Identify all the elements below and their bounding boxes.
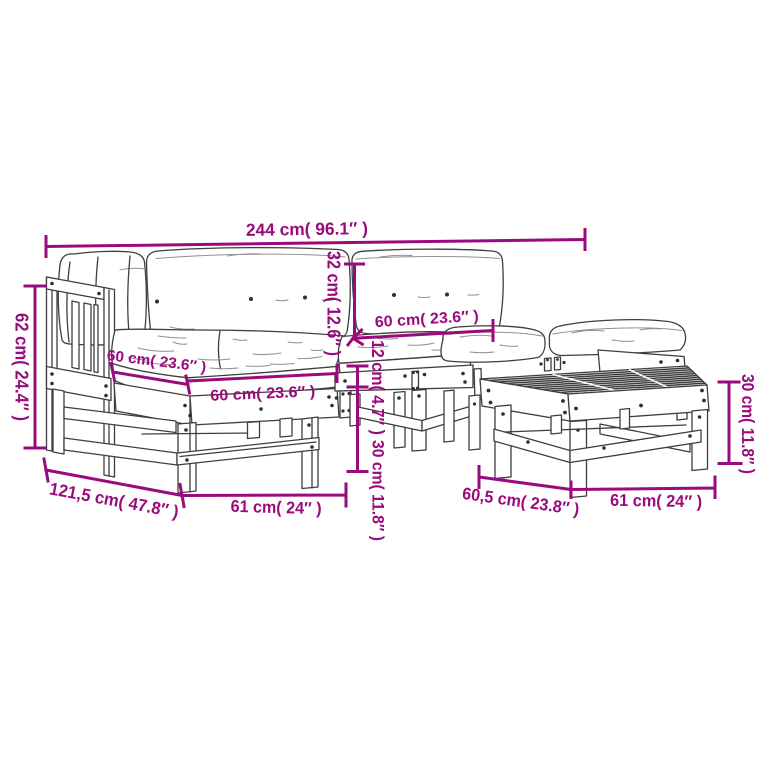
svg-text:61 cm( 24″ ): 61 cm( 24″ ) bbox=[230, 497, 321, 518]
svg-text:30 cm( 11.8″ ): 30 cm( 11.8″ ) bbox=[369, 440, 388, 541]
svg-text:30 cm( 11.8″ ): 30 cm( 11.8″ ) bbox=[738, 374, 758, 474]
svg-text:62 cm( 24.4″ ): 62 cm( 24.4″ ) bbox=[12, 313, 32, 421]
svg-text:61 cm( 24″ ): 61 cm( 24″ ) bbox=[610, 491, 702, 512]
svg-text:12 cm( 4.7″ ): 12 cm( 4.7″ ) bbox=[368, 340, 388, 435]
svg-text:32 cm( 12.6″ ): 32 cm( 12.6″ ) bbox=[324, 251, 344, 356]
svg-text:244 cm( 96.1″ ): 244 cm( 96.1″ ) bbox=[246, 218, 368, 240]
